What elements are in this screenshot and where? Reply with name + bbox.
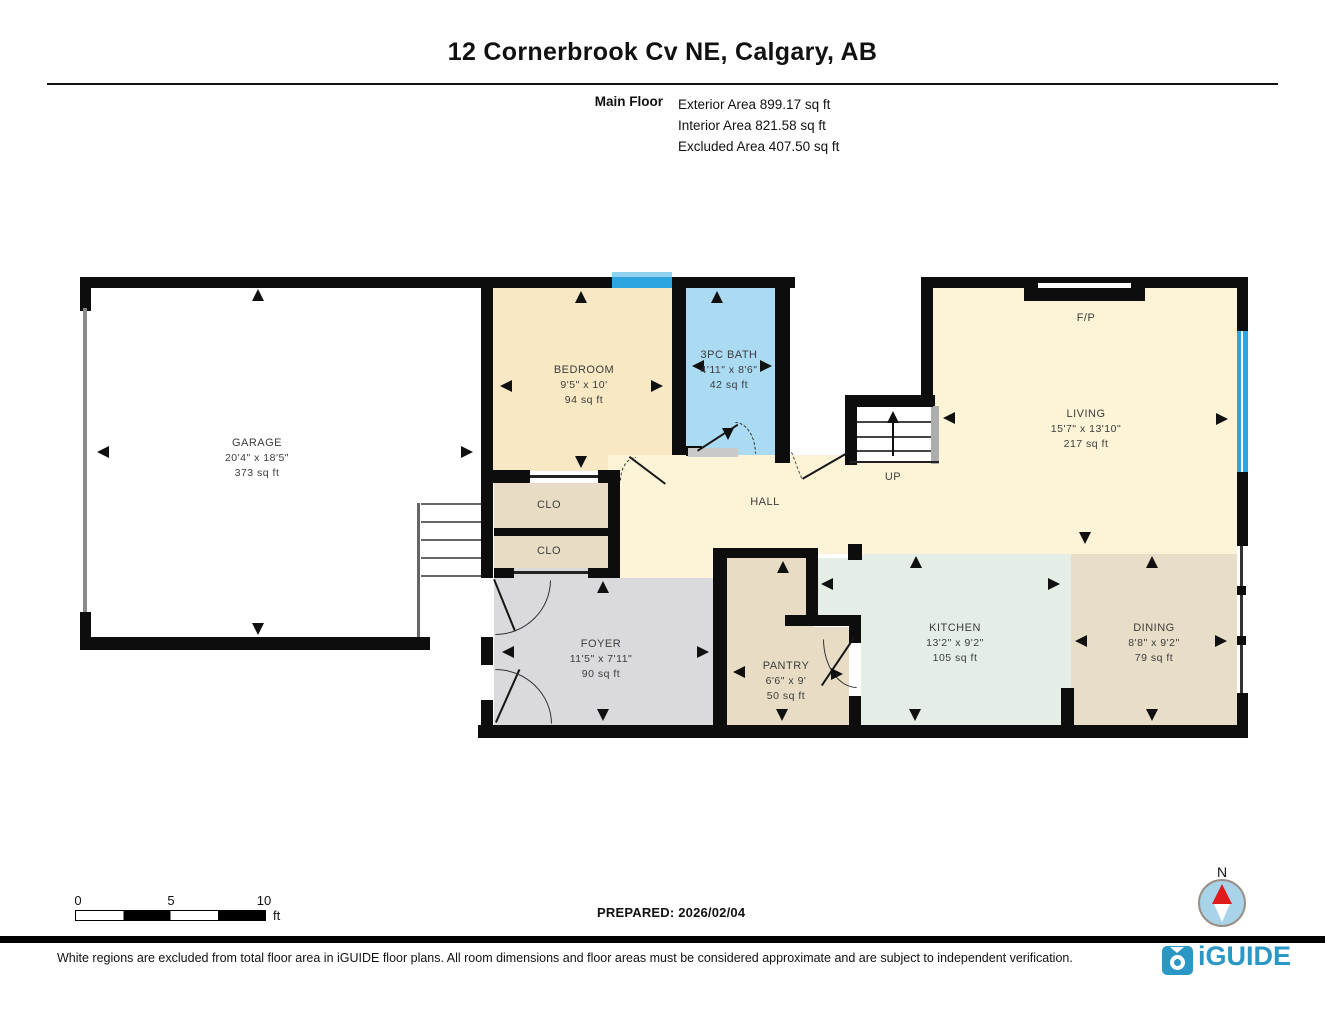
wall [478,725,1248,738]
stair-handrail [931,406,939,464]
closet-sliding-door [530,475,598,478]
foyer-label: FOYER 11'5" x 7'11" 90 sq ft [570,637,633,682]
window-pane-line [1241,331,1243,472]
wall [1237,586,1246,595]
dimension-arrow [502,646,514,658]
dimension-arrow [722,428,734,440]
stair-tread [421,539,482,541]
wall [848,544,862,560]
scale-bar [75,910,266,921]
wall [80,637,430,650]
wall [1237,636,1246,645]
scale-tick-5: 5 [167,893,174,908]
dimension-arrow [831,668,843,680]
wall [494,528,608,536]
floor-plan-page: 12 Cornerbrook Cv NE, Calgary, AB Main F… [0,0,1325,1024]
stair-tread [421,557,482,559]
dimension-arrow [909,709,921,721]
wall [80,277,795,288]
wall [806,548,818,618]
wall [608,470,620,578]
hall-label: HALL [750,495,780,510]
living-label: LIVING 15'7" x 13'10" 217 sq ft [1051,407,1121,452]
bedroom-label: BEDROOM 9'5" x 10' 94 sq ft [554,363,614,408]
hall-floor [620,554,713,579]
stair-tread [857,436,933,438]
wall [849,696,861,725]
compass-icon [1198,879,1246,927]
stair-tread [421,503,482,505]
stair-edge [849,461,939,463]
closet-sliding-door [514,571,588,574]
window [612,277,672,288]
logo-flap [1170,947,1184,953]
dimension-arrow [1146,709,1158,721]
dimension-arrow [1146,556,1158,568]
up-arrow-shaft [892,420,894,456]
dimension-arrow [1215,635,1227,647]
dimension-arrow [733,666,745,678]
wall [921,277,933,407]
wall [672,277,686,455]
dimension-arrow [597,709,609,721]
wall [481,277,493,578]
dimension-arrow [597,581,609,593]
dimension-arrow [943,412,955,424]
footer-divider [0,936,1325,943]
dimension-arrow [252,623,264,635]
garage-label: GARAGE 20'4" x 18'5" 373 sq ft [225,436,289,481]
prepared-date: PREPARED: 2026/02/04 [597,905,745,920]
fireplace [1024,277,1145,301]
dimension-arrow [711,291,723,303]
scale-unit: ft [273,908,280,923]
dimension-arrow [500,380,512,392]
wall [1237,277,1248,331]
dimension-arrow [697,646,709,658]
dining-window-wall [1240,546,1243,693]
stair-tread [421,575,482,577]
compass-north-label: N [1217,864,1227,880]
wall [1061,688,1074,725]
dimension-arrow [821,578,833,590]
dimension-arrow [97,446,109,458]
dimension-arrow [1075,635,1087,647]
wall [481,470,530,483]
stair-enclosure-wall [845,395,857,465]
dimension-arrow [252,289,264,301]
stair-tread [857,450,933,452]
bath-label: 3PC BATH 4'11" x 8'6" 42 sq ft [701,348,758,393]
dimension-arrow [461,446,473,458]
compass-needle-north [1212,884,1232,904]
dimension-arrow [1216,413,1228,425]
dimension-arrow [760,360,772,372]
dimension-arrow [651,380,663,392]
wall [80,277,91,311]
dimension-arrow [910,556,922,568]
logo-lens-dot [1174,959,1181,966]
wall [713,548,815,558]
fireplace-label: F/P [1077,311,1096,326]
dimension-arrow [776,709,788,721]
dimension-arrow [777,561,789,573]
garage-side-wall [83,308,87,628]
wall [494,568,514,578]
kitchen-label: KITCHEN 13'2" x 9'2" 105 sq ft [926,621,984,666]
dimension-arrow [575,291,587,303]
dimension-arrow [1079,532,1091,544]
door-threshold [688,448,738,457]
closet1-label: CLO [537,498,561,513]
iguide-logo-text: iGUIDE [1198,941,1291,972]
footer-disclaimer: White regions are excluded from total fl… [57,951,1073,965]
dimension-arrow [1048,578,1060,590]
dimension-arrow [575,456,587,468]
wall [1237,472,1248,546]
wall [481,637,493,665]
compass-needle-south [1214,904,1230,922]
wall [775,277,790,463]
up-label: UP [885,470,901,485]
up-arrow-head [887,411,899,423]
iguide-logo-icon [1162,946,1193,975]
fireplace-slot [1038,283,1131,288]
scale-tick-10: 10 [257,893,271,908]
scale-tick-0: 0 [74,893,81,908]
stair-tread [421,521,482,523]
stair-rail [417,503,420,648]
wall [785,615,861,626]
wall [713,548,727,725]
dining-label: DINING 8'8" x 9'2" 79 sq ft [1128,621,1179,666]
pantry-label: PANTRY 6'6" x 9' 50 sq ft [763,659,810,704]
floor-plan: GARAGE 20'4" x 18'5" 373 sq ft BEDROOM 9… [0,0,1325,1024]
wall [588,568,620,578]
closet2-label: CLO [537,544,561,559]
